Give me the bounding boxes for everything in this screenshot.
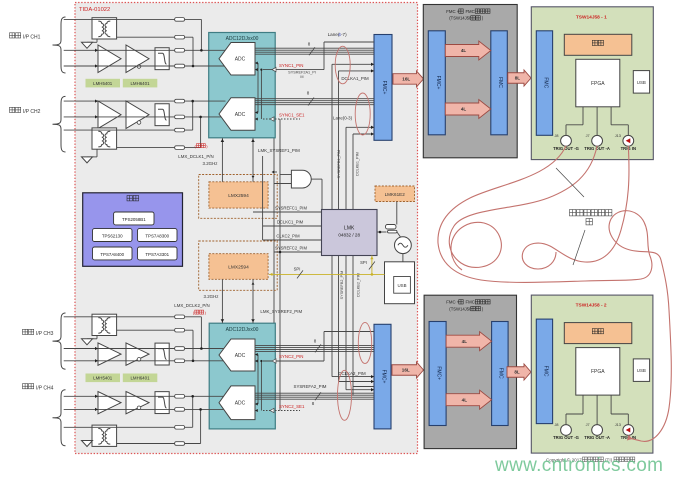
svg-text:ADC: ADC [235,57,246,63]
svg-text:DCLKB2_PIM: DCLKB2_PIM [357,273,361,297]
svg-text:ADC12DJxx00: ADC12DJxx00 [226,327,259,333]
svg-text:4L: 4L [461,107,467,112]
svg-text:16L: 16L [402,368,410,373]
svg-text:FMC+: FMC+ [381,81,387,95]
svg-text:4L: 4L [462,397,468,402]
svg-text:LMK61E2: LMK61E2 [385,192,406,197]
svg-text:USB: USB [397,283,406,288]
svg-text:SYSREFC1_PIM: SYSREFC1_PIM [275,206,307,211]
svg-text:TRIG OUT -G: TRIG OUT -G [553,435,579,440]
svg-text:TPS7A8400: TPS7A8400 [100,252,124,257]
svg-text:TRIG OUT -A: TRIG OUT -A [584,435,610,440]
svg-text:I/P CH3: I/P CH3 [36,331,54,337]
svg-text:FMC +: FMC + [446,300,460,305]
svg-text:ADC: ADC [235,353,246,359]
svg-text:FMC+: FMC+ [435,76,441,90]
svg-text:ADC: ADC [235,401,246,407]
svg-text:I/P CH4: I/P CH4 [36,385,54,391]
svg-text:SYNC2_SE1: SYNC2_SE1 [279,404,305,409]
svg-text:USB: USB [637,80,646,85]
svg-text:TSW14J58 - 1: TSW14J58 - 1 [576,14,607,20]
svg-text:J7: J7 [586,423,590,427]
svg-text:TIDA-01022: TIDA-01022 [79,7,110,13]
svg-text:SYSREFC2_PIM: SYSREFC2_PIM [275,246,307,251]
svg-text:CLKC2_PIM: CLKC2_PIM [276,234,300,239]
svg-text:4L: 4L [461,48,467,53]
svg-text:16L: 16L [402,77,410,82]
svg-text:DCLKA1_PIM: DCLKA1_PIM [341,76,369,81]
svg-text:SYSREF2A1_PI: SYSREF2A1_PI [288,71,316,75]
svg-text:LMK_SYSREF2_PIM: LMK_SYSREF2_PIM [260,309,302,314]
svg-text:LMX_DCLK2_P/N: LMX_DCLK2_P/N [174,303,209,308]
svg-text:FMC: FMC [465,9,474,14]
svg-text:LMH5401: LMH5401 [93,81,113,86]
svg-text:LMH5401: LMH5401 [93,376,113,381]
svg-text:FMC+: FMC+ [436,366,442,380]
svg-text:LMX2594: LMX2594 [228,193,249,199]
svg-text:LMX_DCLK1_P/N: LMX_DCLK1_P/N [178,154,213,159]
svg-text:TPS7A3301: TPS7A3301 [145,252,169,257]
svg-text:(TSW14J58: (TSW14J58 [449,306,472,311]
svg-text:ADC12DJxx00: ADC12DJxx00 [226,36,259,42]
svg-text:SYNC1_SE1: SYNC1_SE1 [279,113,305,118]
svg-text:FMC +: FMC + [446,9,460,14]
svg-text:3.2GHz: 3.2GHz [204,294,219,299]
svg-text:LMK_SYSREF1_PIM: LMK_SYSREF1_PIM [258,148,300,153]
svg-text:TPS62130: TPS62130 [102,233,123,238]
svg-text:FMC+: FMC+ [381,370,387,384]
svg-text:3.2GHz: 3.2GHz [203,161,218,166]
svg-text:LMH6401: LMH6401 [130,376,150,381]
svg-text:LMX2594: LMX2594 [228,265,249,271]
svg-text:FPGA: FPGA [591,81,605,87]
svg-text:DCLKC1_PIM: DCLKC1_PIM [277,220,304,225]
svg-text:Lane(0-3): Lane(0-3) [333,116,353,121]
svg-text:SYNC2_PIN: SYNC2_PIN [279,354,303,359]
svg-text:J13: J13 [615,423,621,427]
svg-text:TSW14J58 - 2: TSW14J58 - 2 [576,303,607,309]
svg-text:LMH6401: LMH6401 [130,81,150,86]
svg-text:SPI: SPI [360,260,367,265]
svg-text:LMK: LMK [344,226,355,232]
svg-text:-7): -7) [341,32,347,37]
svg-text:ADC: ADC [235,112,246,118]
svg-text:8L: 8L [515,76,521,81]
svg-text:J7: J7 [586,134,590,138]
svg-text:SYSREFB1_PIM: SYSREFB1_PIM [337,150,341,179]
svg-text:FPGA: FPGA [591,369,605,375]
svg-text:I/P CH2: I/P CH2 [23,109,41,115]
svg-text:M: M [300,75,303,79]
svg-text:FMC: FMC [497,77,503,88]
svg-text:TPS2058B1: TPS2058B1 [122,217,146,222]
svg-text:SPI: SPI [294,267,301,272]
svg-text:J8: J8 [554,423,558,427]
svg-text:SYSREFA2_PIM: SYSREFA2_PIM [294,384,327,389]
svg-text:SYNC1_PIN: SYNC1_PIN [279,63,303,68]
svg-text:TPS7A8300: TPS7A8300 [145,233,169,238]
svg-text:USB: USB [637,368,646,373]
svg-text:FMC: FMC [542,366,548,377]
svg-text:8L: 8L [514,370,520,375]
svg-text:DCLKB1_PIM: DCLKB1_PIM [356,152,360,176]
svg-text:04832 / 28: 04832 / 28 [338,233,360,238]
svg-text:(TSW14J58: (TSW14J58 [449,16,472,21]
svg-text:FMC: FMC [542,77,548,88]
svg-text:I/P CH1: I/P CH1 [23,35,41,41]
svg-text:4L: 4L [462,339,468,344]
svg-text:FMC: FMC [498,368,504,379]
svg-text:www.cntronics.com: www.cntronics.com [494,455,663,476]
svg-text:J13: J13 [615,134,621,138]
svg-text:FMC: FMC [466,300,475,305]
svg-text:J8: J8 [554,134,558,138]
svg-text:SYSREFB2_PIM: SYSREFB2_PIM [340,271,344,300]
